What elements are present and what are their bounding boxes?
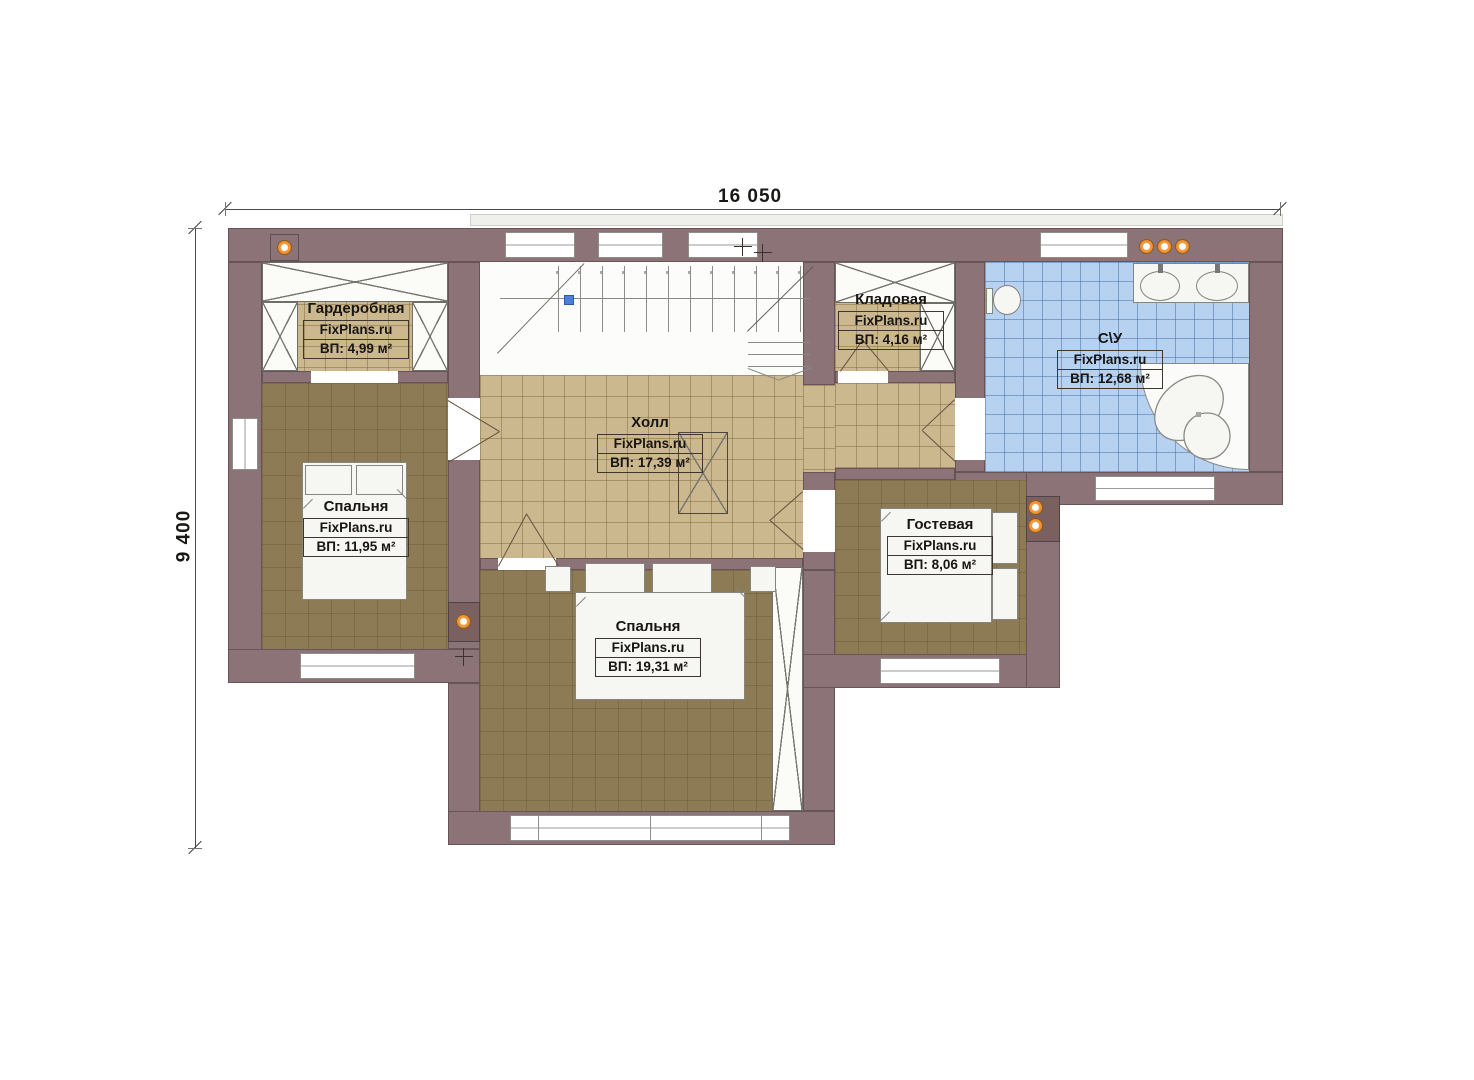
reference-cross xyxy=(455,648,473,666)
nightstand xyxy=(545,566,571,592)
dimension-cap xyxy=(188,848,202,849)
room-name: Холл xyxy=(631,414,669,431)
window-mullion xyxy=(761,816,762,840)
wall-guest-top xyxy=(835,468,955,480)
wardrobe-symbol xyxy=(262,262,448,302)
room-label-bathroom: С\У FixPlans.ru ВП: 12,68 м² xyxy=(1057,330,1163,389)
dimension-height-label: 9 400 xyxy=(173,510,195,563)
watermark: FixPlans.ru xyxy=(303,320,409,340)
window-mullion xyxy=(650,816,651,840)
room-label-kladovaya: Кладовая FixPlans.ru ВП: 4,16 м² xyxy=(838,291,944,350)
watermark: FixPlans.ru xyxy=(597,434,703,454)
vent-icon xyxy=(1028,500,1043,515)
reference-cross xyxy=(734,238,752,256)
door-opening xyxy=(803,490,835,552)
stairs-tread-line xyxy=(748,366,810,367)
watermark: FixPlans.ru xyxy=(838,311,944,331)
wardrobe-symbol xyxy=(412,302,448,371)
wall-left xyxy=(228,262,262,683)
room-label-bedroom-left: Спальня FixPlans.ru ВП: 11,95 м² xyxy=(303,498,409,557)
watermark: FixPlans.ru xyxy=(887,536,993,556)
toilet-tank xyxy=(986,288,993,314)
stairs-tread-line xyxy=(748,342,810,343)
room-name: Спальня xyxy=(324,498,389,515)
watermark: FixPlans.ru xyxy=(595,638,701,658)
dimension-width-label: 16 050 xyxy=(718,186,782,208)
reference-cross xyxy=(754,244,772,262)
vent-icon xyxy=(1028,518,1043,533)
stairs-marker xyxy=(564,295,574,305)
floor-plan-canvas: 16 050 9 400 xyxy=(0,0,1474,1080)
floor-hall-east xyxy=(803,385,835,472)
vent-icon xyxy=(456,614,471,629)
light-icon xyxy=(1157,239,1172,254)
room-area: ВП: 4,99 м² xyxy=(303,339,409,359)
stairs-step-numbers xyxy=(556,271,802,274)
sink xyxy=(1196,271,1238,301)
bed-pillow xyxy=(992,568,1018,620)
watermark: FixPlans.ru xyxy=(1057,350,1163,370)
window xyxy=(505,232,575,258)
tap-icon xyxy=(1158,264,1163,273)
bed-pillow xyxy=(652,563,712,593)
room-name: Гардеробная xyxy=(307,300,404,317)
window xyxy=(1095,476,1215,501)
window xyxy=(880,658,1000,684)
door-opening xyxy=(838,371,888,383)
room-area: ВП: 11,95 м² xyxy=(303,537,409,557)
door-opening xyxy=(448,398,480,460)
window xyxy=(598,232,663,258)
room-name: С\У xyxy=(1098,330,1122,347)
door-opening xyxy=(311,371,398,383)
room-label-bedroom-center: Спальня FixPlans.ru ВП: 19,31 м² xyxy=(595,618,701,677)
bed-pillow xyxy=(356,465,403,495)
floor-hall-east2 xyxy=(835,383,955,468)
room-name: Спальня xyxy=(616,618,681,635)
dimension-cap xyxy=(225,202,226,216)
light-icon xyxy=(1175,239,1190,254)
room-label-garderobnaya: Гардеробная FixPlans.ru ВП: 4,99 м² xyxy=(303,300,409,359)
sink xyxy=(1140,271,1180,301)
window-mullion xyxy=(538,816,539,840)
window xyxy=(300,653,415,679)
bed-pillow xyxy=(585,563,645,593)
room-label-hall: Холл FixPlans.ru ВП: 17,39 м² xyxy=(597,414,703,473)
bed-pillow xyxy=(305,465,352,495)
room-area: ВП: 19,31 м² xyxy=(595,657,701,677)
stairs-tread-line xyxy=(748,354,810,355)
stairs-rail xyxy=(500,298,810,299)
room-area: ВП: 17,39 м² xyxy=(597,453,703,473)
room-name: Кладовая xyxy=(855,291,927,308)
room-area: ВП: 4,16 м² xyxy=(838,330,944,350)
wall-right xyxy=(1249,262,1283,472)
wardrobe-symbol xyxy=(772,567,803,811)
dimension-line-top xyxy=(225,209,1280,210)
door-opening xyxy=(955,398,985,460)
wardrobe-symbol xyxy=(262,302,298,371)
dimension-cap xyxy=(188,228,202,229)
toilet xyxy=(993,285,1021,315)
vent-icon xyxy=(277,240,292,255)
tap-icon xyxy=(1215,264,1220,273)
room-label-guest: Гостевая FixPlans.ru ВП: 8,06 м² xyxy=(887,516,993,575)
nightstand xyxy=(750,566,776,592)
wall-center-right xyxy=(803,570,835,811)
eave-line xyxy=(470,214,1283,226)
window xyxy=(232,418,258,470)
stairs-treads xyxy=(558,266,802,332)
room-area: ВП: 12,68 м² xyxy=(1057,369,1163,389)
light-icon xyxy=(1139,239,1154,254)
watermark: FixPlans.ru xyxy=(303,518,409,538)
room-name: Гостевая xyxy=(907,516,974,533)
bed-pillow xyxy=(992,512,1018,564)
window xyxy=(1040,232,1128,258)
window-wide xyxy=(510,815,790,841)
dimension-cap xyxy=(1280,202,1281,216)
room-area: ВП: 8,06 м² xyxy=(887,555,993,575)
